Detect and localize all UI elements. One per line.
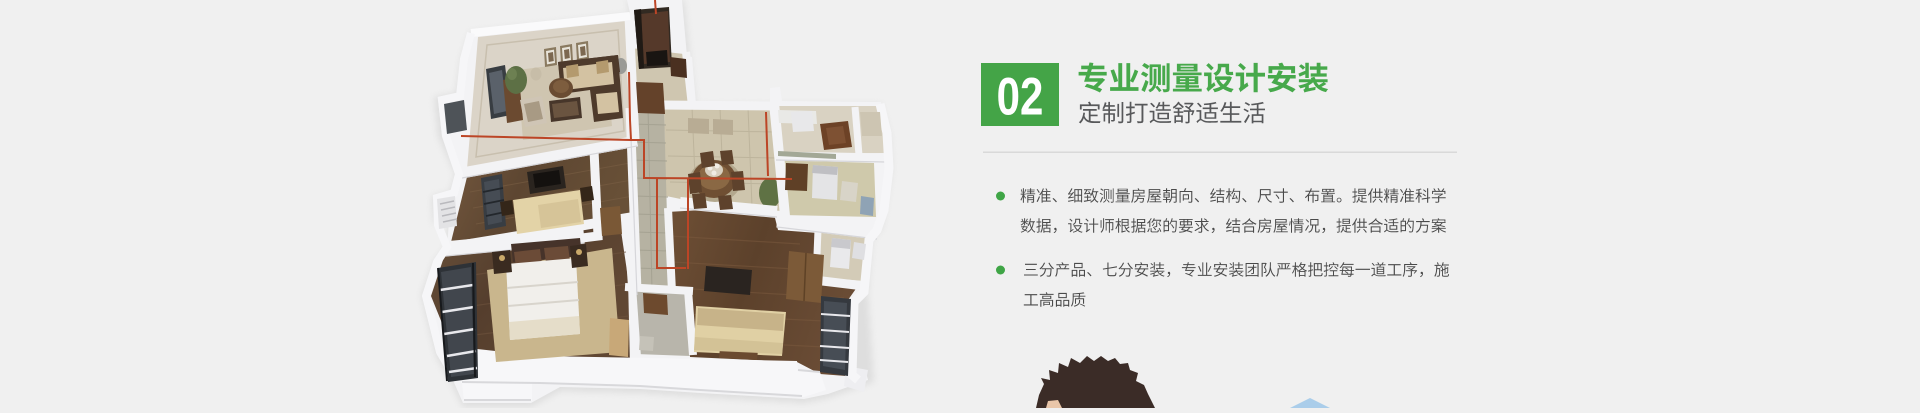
svg-text:02: 02 [997, 68, 1044, 127]
